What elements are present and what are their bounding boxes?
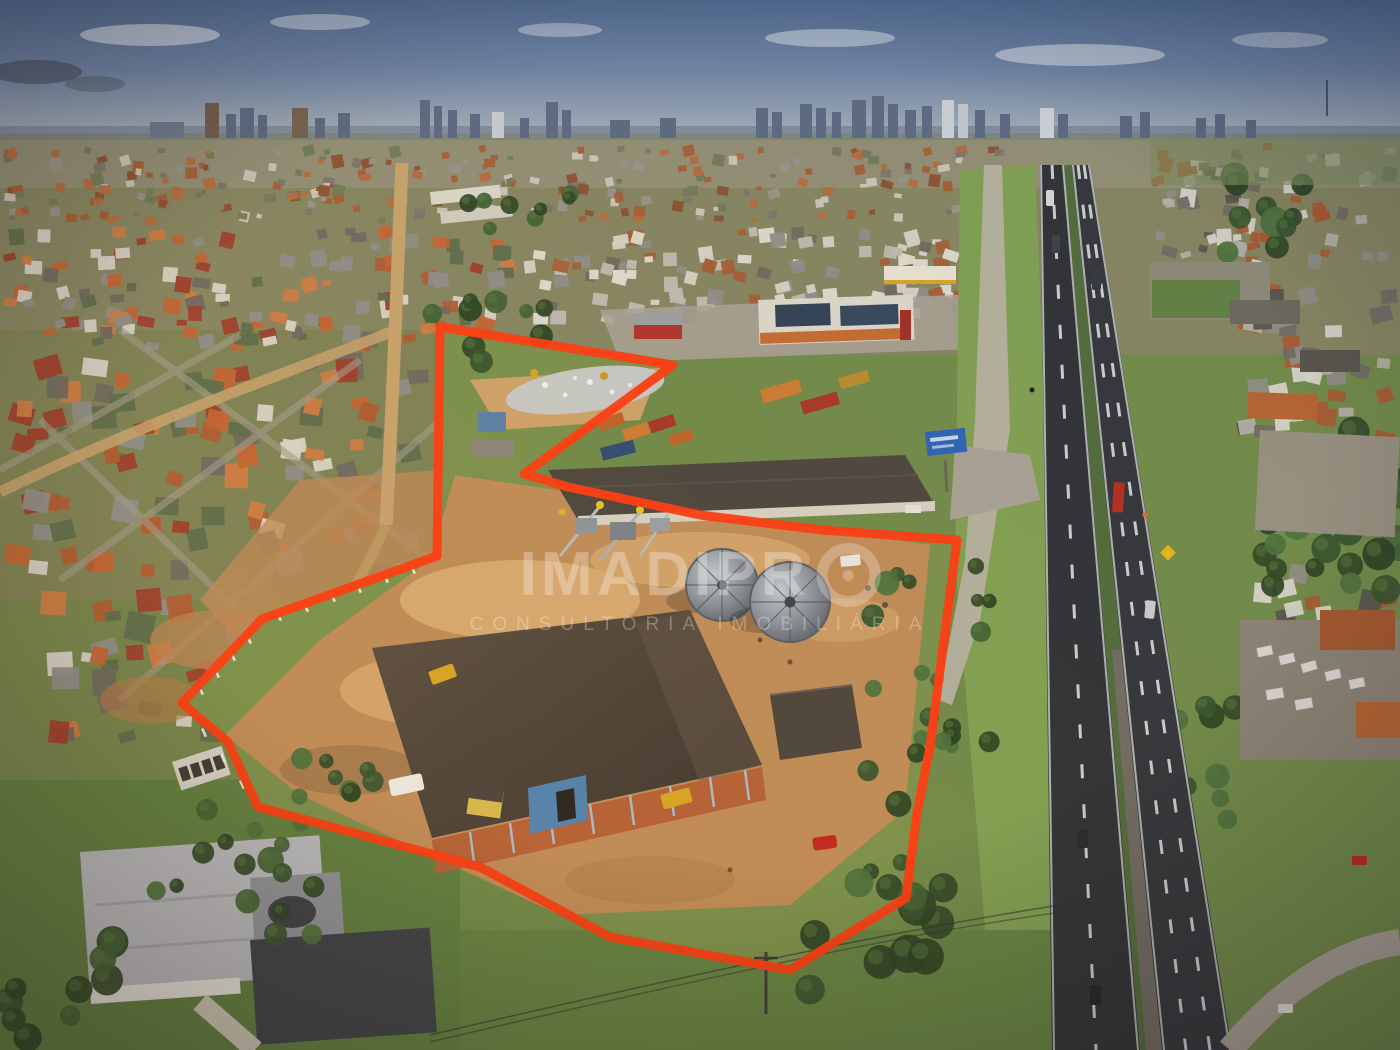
gas-station-fascia bbox=[884, 280, 956, 284]
red-store bbox=[634, 325, 682, 339]
silver-car bbox=[1144, 600, 1156, 619]
cloud bbox=[518, 23, 602, 37]
gray-shed bbox=[472, 440, 514, 457]
white-car bbox=[1278, 1004, 1293, 1013]
aerial-photo: IMADIPR CONSULTORIA IMOBILIÁRIA bbox=[0, 0, 1400, 1050]
red-truck bbox=[1112, 482, 1125, 513]
red-car bbox=[1352, 856, 1367, 865]
red-accent bbox=[900, 310, 911, 340]
excavator bbox=[530, 369, 538, 377]
traffic-cone bbox=[1143, 513, 1148, 518]
scene-canvas bbox=[0, 0, 1400, 1050]
solar-panels bbox=[775, 303, 831, 327]
motorcycle bbox=[1030, 388, 1035, 393]
billboard-pole bbox=[945, 460, 947, 492]
se-shed-roof bbox=[770, 685, 862, 760]
dark-cloud bbox=[65, 76, 125, 92]
excavator bbox=[600, 372, 608, 380]
blue-shed bbox=[478, 412, 506, 432]
dark-shed bbox=[1300, 350, 1360, 372]
orange-shed bbox=[1247, 392, 1318, 420]
dark-shed bbox=[1230, 300, 1300, 324]
solar-panels bbox=[840, 304, 899, 326]
white-truck bbox=[905, 505, 921, 513]
yellow-road-sign bbox=[1160, 545, 1176, 561]
cloud bbox=[765, 29, 895, 47]
orange-shed bbox=[1320, 610, 1395, 650]
sports-field bbox=[1152, 280, 1240, 318]
doorway bbox=[556, 788, 576, 822]
cloud bbox=[270, 14, 370, 30]
truck bbox=[1052, 235, 1060, 253]
cloud bbox=[1232, 32, 1328, 48]
white-car bbox=[840, 554, 861, 567]
cloud bbox=[80, 24, 220, 46]
truck bbox=[1092, 268, 1101, 290]
cloud bbox=[995, 44, 1165, 66]
store-roof bbox=[634, 313, 682, 326]
side-road bbox=[1230, 942, 1400, 1050]
dark-car bbox=[1078, 830, 1088, 848]
truck bbox=[1046, 190, 1054, 206]
gravel-lot bbox=[1255, 430, 1400, 537]
orange-shed bbox=[1356, 702, 1400, 738]
dark-car bbox=[1090, 985, 1101, 1005]
